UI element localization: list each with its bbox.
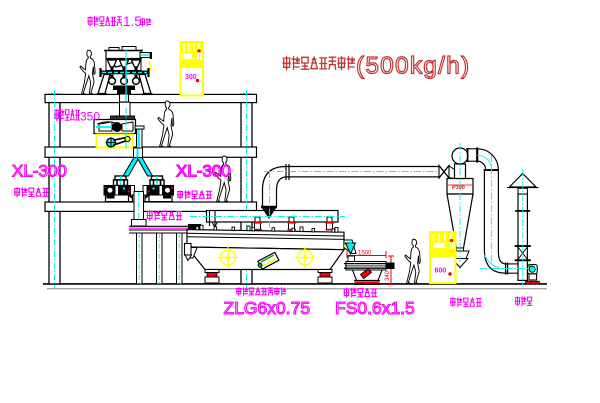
svg-text:(500kg/h): (500kg/h) [356, 53, 470, 80]
svg-text:P300: P300 [452, 185, 465, 191]
svg-text:1.5: 1.5 [123, 14, 142, 29]
svg-text:300: 300 [185, 74, 197, 81]
svg-text:1500: 1500 [358, 251, 372, 257]
svg-text:XL-300: XL-300 [176, 162, 231, 181]
svg-text:600: 600 [435, 268, 447, 275]
svg-text:XL-300: XL-300 [12, 162, 67, 181]
svg-text:350: 350 [80, 110, 100, 124]
svg-text:ZLG6x0.75: ZLG6x0.75 [224, 298, 311, 318]
svg-text:FS0.6x1.5: FS0.6x1.5 [335, 298, 415, 318]
svg-text:340: 340 [385, 270, 391, 281]
